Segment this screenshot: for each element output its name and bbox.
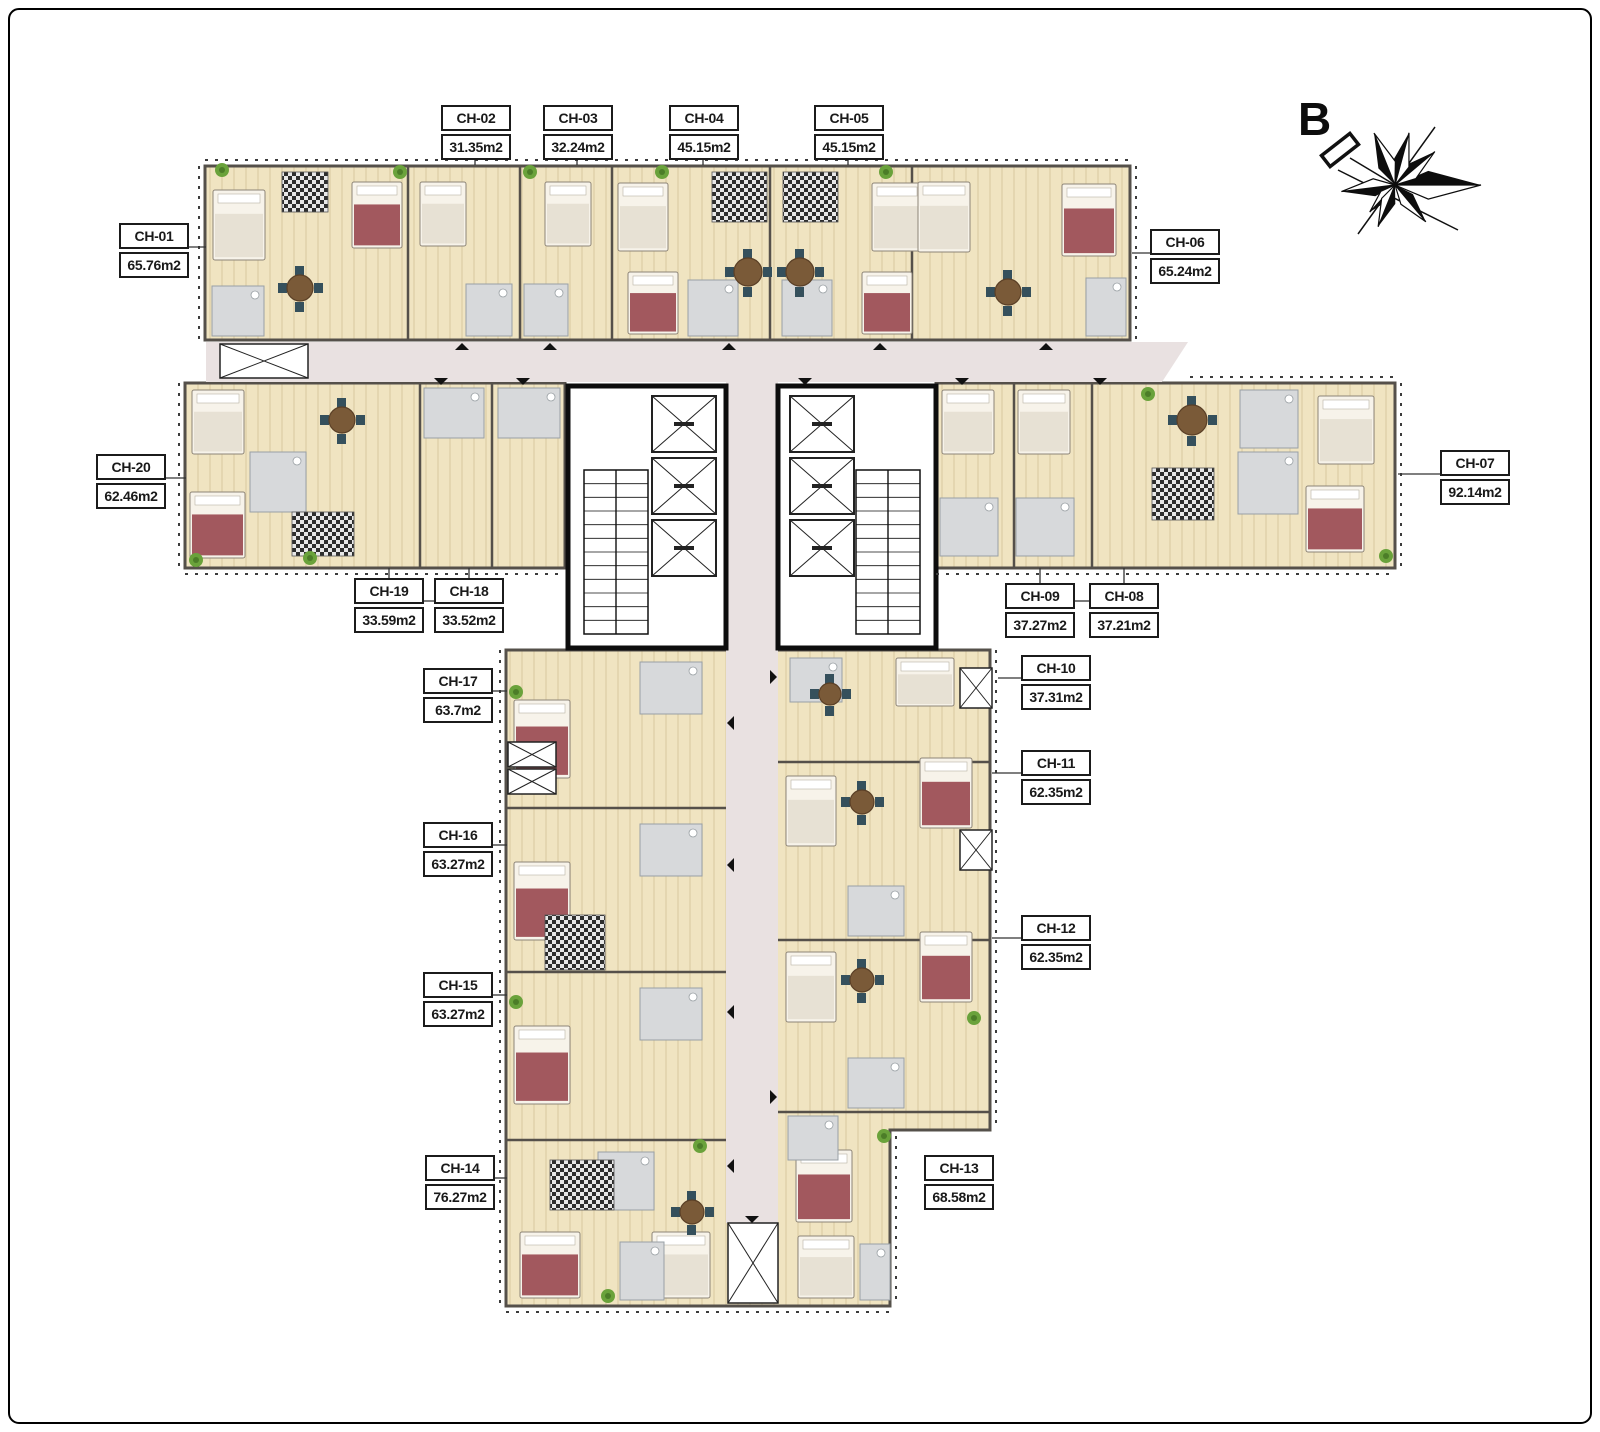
unit-label-ch-16: CH-16 63.27m2 xyxy=(423,822,493,880)
unit-id: CH-02 xyxy=(441,105,511,131)
unit-area: 33.59m2 xyxy=(354,607,424,633)
corridor-end xyxy=(1162,342,1188,382)
unit-label-ch-01: CH-01 65.76m2 xyxy=(119,223,189,281)
unit-area: 68.58m2 xyxy=(924,1184,994,1210)
floor-plan-page: CH-01 65.76m2 CH-02 31.35m2 CH-03 32.24m… xyxy=(0,0,1600,1432)
unit-label-ch-03: CH-03 32.24m2 xyxy=(543,105,613,163)
unit-id: CH-06 xyxy=(1150,229,1220,255)
unit-area: 92.14m2 xyxy=(1440,479,1510,505)
unit-label-ch-15: CH-15 63.27m2 xyxy=(423,972,493,1030)
unit-area: 62.35m2 xyxy=(1021,779,1091,805)
unit-id: CH-17 xyxy=(423,668,493,694)
unit-id: CH-15 xyxy=(423,972,493,998)
compass-north-label: B xyxy=(1298,92,1331,146)
unit-label-ch-04: CH-04 45.15m2 xyxy=(669,105,739,163)
unit-label-ch-06: CH-06 65.24m2 xyxy=(1150,229,1220,287)
unit-label-ch-20: CH-20 62.46m2 xyxy=(96,454,166,512)
unit-id: CH-18 xyxy=(434,578,504,604)
unit-area: 62.35m2 xyxy=(1021,944,1091,970)
corridor-horizontal xyxy=(206,342,1162,382)
unit-id: CH-11 xyxy=(1021,750,1091,776)
unit-id: CH-14 xyxy=(425,1155,495,1181)
unit-id: CH-05 xyxy=(814,105,884,131)
unit-area: 45.15m2 xyxy=(669,134,739,160)
unit-area: 63.27m2 xyxy=(423,1001,493,1027)
unit-area: 76.27m2 xyxy=(425,1184,495,1210)
unit-area: 65.24m2 xyxy=(1150,258,1220,284)
unit-id: CH-04 xyxy=(669,105,739,131)
unit-area: 37.21m2 xyxy=(1089,612,1159,638)
unit-label-ch-17: CH-17 63.7m2 xyxy=(423,668,493,726)
unit-area: 45.15m2 xyxy=(814,134,884,160)
unit-area: 62.46m2 xyxy=(96,483,166,509)
unit-label-ch-13: CH-13 68.58m2 xyxy=(924,1155,994,1213)
unit-label-ch-10: CH-10 37.31m2 xyxy=(1021,655,1091,713)
unit-label-ch-09: CH-09 37.27m2 xyxy=(1005,583,1075,641)
unit-area: 31.35m2 xyxy=(441,134,511,160)
unit-id: CH-13 xyxy=(924,1155,994,1181)
unit-label-ch-12: CH-12 62.35m2 xyxy=(1021,915,1091,973)
unit-id: CH-10 xyxy=(1021,655,1091,681)
compass: B xyxy=(1278,92,1503,277)
unit-id: CH-03 xyxy=(543,105,613,131)
unit-label-ch-08: CH-08 37.21m2 xyxy=(1089,583,1159,641)
unit-label-ch-19: CH-19 33.59m2 xyxy=(354,578,424,636)
unit-id: CH-20 xyxy=(96,454,166,480)
unit-area: 37.31m2 xyxy=(1021,684,1091,710)
unit-id: CH-16 xyxy=(423,822,493,848)
unit-label-ch-18: CH-18 33.52m2 xyxy=(434,578,504,636)
unit-area: 63.7m2 xyxy=(423,697,493,723)
unit-label-ch-11: CH-11 62.35m2 xyxy=(1021,750,1091,808)
unit-id: CH-12 xyxy=(1021,915,1091,941)
unit-label-ch-02: CH-02 31.35m2 xyxy=(441,105,511,163)
unit-label-ch-05: CH-05 45.15m2 xyxy=(814,105,884,163)
unit-area: 32.24m2 xyxy=(543,134,613,160)
unit-label-ch-07: CH-07 92.14m2 xyxy=(1440,450,1510,508)
unit-area: 63.27m2 xyxy=(423,851,493,877)
unit-id: CH-19 xyxy=(354,578,424,604)
unit-id: CH-09 xyxy=(1005,583,1075,609)
unit-id: CH-07 xyxy=(1440,450,1510,476)
unit-area: 37.27m2 xyxy=(1005,612,1075,638)
unit-id: CH-01 xyxy=(119,223,189,249)
unit-area: 33.52m2 xyxy=(434,607,504,633)
unit-id: CH-08 xyxy=(1089,583,1159,609)
unit-area: 65.76m2 xyxy=(119,252,189,278)
unit-label-ch-14: CH-14 76.27m2 xyxy=(425,1155,495,1213)
